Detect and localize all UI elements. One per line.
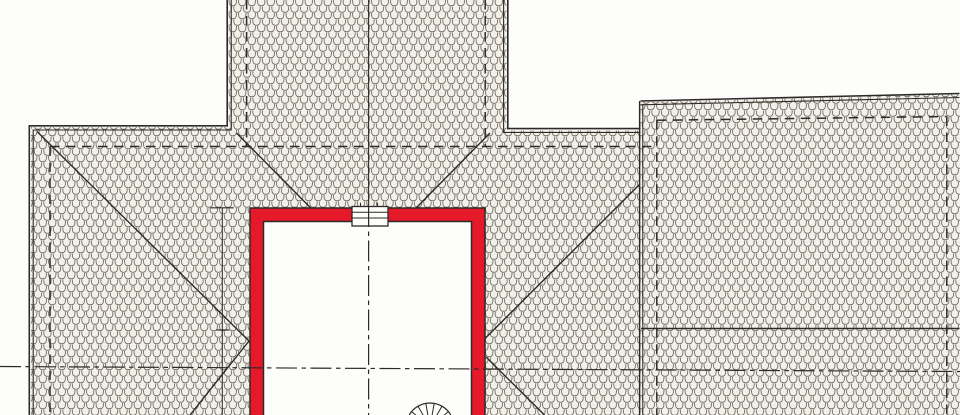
courtyard-highlight bbox=[250, 208, 485, 415]
chimney bbox=[352, 203, 388, 226]
roof-plan-svg bbox=[0, 0, 960, 415]
roof-hatch bbox=[31, 0, 960, 415]
roof-surface bbox=[31, 0, 960, 415]
courtyard-opening bbox=[264, 222, 472, 415]
chimney-body bbox=[352, 207, 388, 227]
eave-outer-middle bbox=[508, 0, 641, 129]
eave-inner-middle bbox=[504, 0, 641, 132]
roof-plan-canvas bbox=[0, 0, 960, 415]
